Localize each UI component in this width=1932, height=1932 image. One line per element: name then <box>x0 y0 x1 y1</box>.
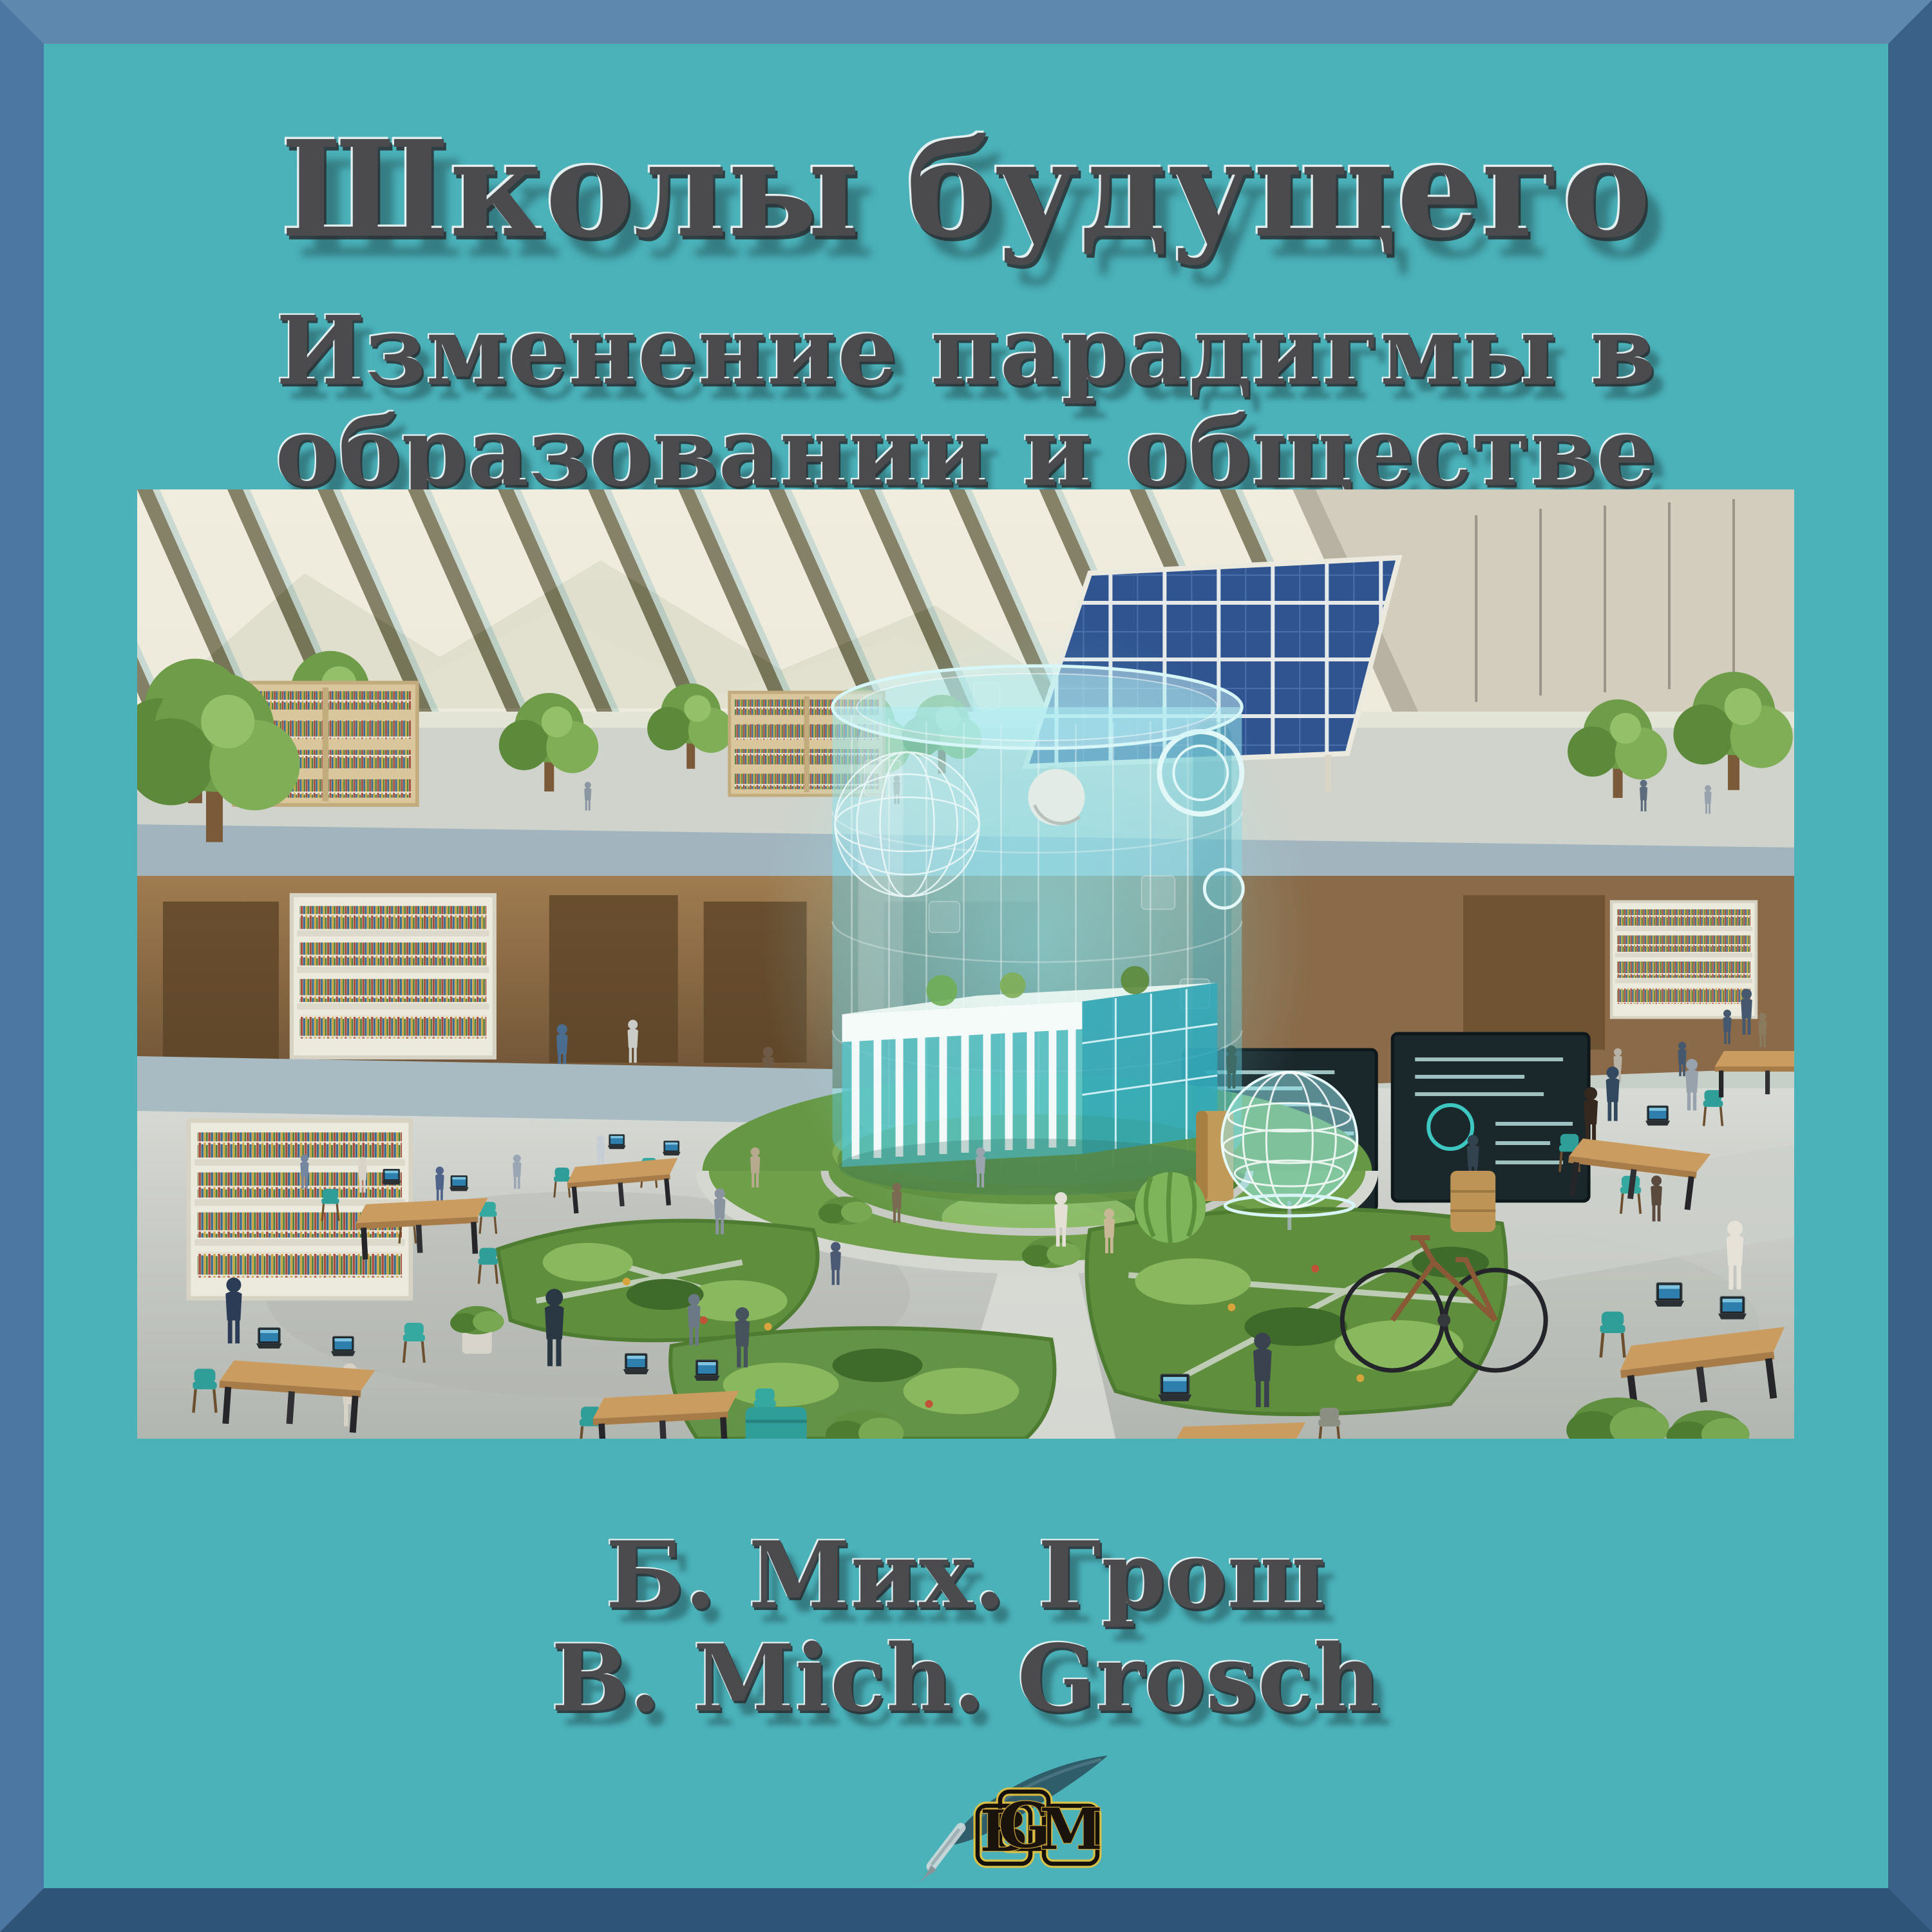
cover-title: Школы будущего <box>44 120 1888 259</box>
author-ru: Б. Мих. Грош <box>44 1524 1888 1627</box>
hologram-cylinder <box>833 666 1244 1204</box>
cover-authors: Б. Мих. Грош B. Mich. Grosch <box>44 1524 1888 1730</box>
publisher-logo: B G M <box>894 1749 1126 1888</box>
wireframe-sphere-icon <box>835 752 980 896</box>
subtitle-line-2: образовании и обществе <box>44 401 1888 502</box>
mezzanine-bookshelf <box>292 895 495 1057</box>
logo-letter-m: M <box>1039 1795 1102 1862</box>
cover-illustration <box>137 489 1794 1439</box>
author-en: B. Mich. Grosch <box>44 1627 1888 1730</box>
watermelon <box>1135 1172 1206 1243</box>
book-cover: Школы будущего Изменение парадигмы в обр… <box>0 0 1932 1932</box>
subtitle-line-1: Изменение парадигмы в <box>44 300 1888 401</box>
sphere-icon <box>1028 769 1084 826</box>
cover-subtitle: Изменение парадигмы в образовании и обще… <box>44 300 1888 503</box>
